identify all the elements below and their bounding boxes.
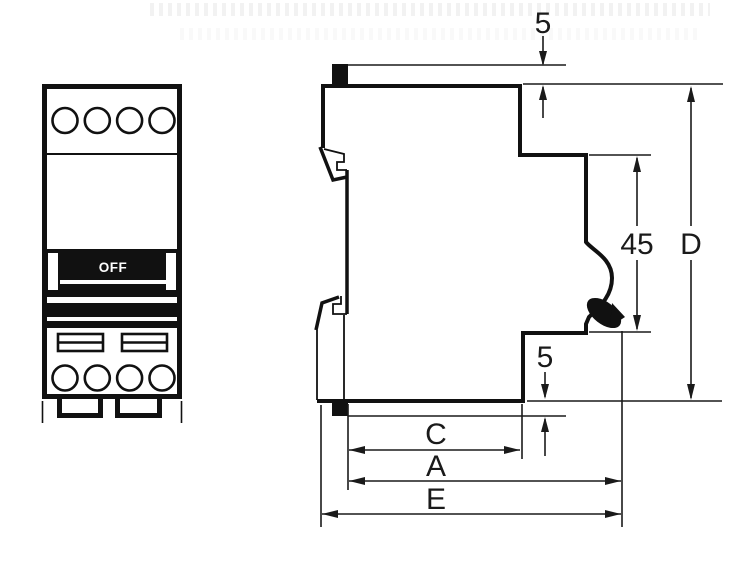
- dim-label-top-5: 5: [535, 7, 552, 40]
- terminal-screw: [150, 108, 175, 133]
- arrowhead: [349, 477, 365, 485]
- dim-45: 45: [620, 156, 653, 331]
- dim-label-45: 45: [620, 228, 653, 261]
- bottom-clamp-block: [332, 403, 348, 416]
- dim-label-C: C: [425, 418, 447, 451]
- arrowhead: [322, 510, 338, 518]
- side-view: [316, 64, 627, 416]
- arrowhead: [504, 446, 520, 454]
- arrowhead: [687, 384, 695, 400]
- dim-label-E: E: [426, 483, 446, 516]
- dim-E: E: [322, 483, 621, 518]
- arrowhead: [633, 315, 641, 331]
- technical-drawing: OFF: [0, 0, 745, 573]
- din-clip-bottom: [316, 296, 347, 400]
- arrowhead: [633, 156, 641, 172]
- arrowhead: [349, 446, 365, 454]
- terminal-screw: [53, 366, 78, 391]
- din-clip-top: [320, 147, 347, 180]
- dim-A: A: [349, 450, 621, 485]
- front-vents: [58, 334, 167, 351]
- arrowhead: [539, 51, 547, 66]
- terminal-screw: [117, 108, 142, 133]
- dim-label-bottom-5: 5: [537, 341, 554, 374]
- front-mounting-tabs: [43, 399, 182, 423]
- dim-D: D: [680, 86, 702, 400]
- arrowhead: [605, 477, 621, 485]
- terminal-screw: [85, 108, 110, 133]
- mounting-tab: [118, 399, 160, 416]
- arrowhead: [541, 384, 549, 399]
- dim-label-D: D: [680, 228, 702, 261]
- drawing-canvas: OFF: [0, 0, 745, 573]
- dim-top-5: 5: [535, 7, 552, 118]
- rib-band: [47, 321, 177, 328]
- front-bottom-terminals: [53, 366, 175, 391]
- switch-side-slot: [166, 253, 176, 290]
- rib-band: [47, 303, 177, 317]
- mounting-tab: [60, 399, 101, 416]
- terminal-screw: [150, 366, 175, 391]
- dim-C: C: [349, 418, 520, 454]
- terminal-screw: [117, 366, 142, 391]
- front-switch-block: OFF: [47, 249, 177, 297]
- side-body-outline: [317, 86, 612, 401]
- terminal-screw: [53, 108, 78, 133]
- arrowhead: [687, 86, 695, 102]
- dim-label-A: A: [426, 450, 446, 483]
- front-ribs: [47, 303, 177, 328]
- terminal-screw: [85, 366, 110, 391]
- arrowhead: [605, 510, 621, 518]
- front-top-terminals: [53, 108, 175, 133]
- switch-side-slot: [48, 253, 58, 290]
- switch-handle-gap: [60, 280, 166, 284]
- front-view: OFF: [43, 87, 182, 424]
- arrowhead: [539, 85, 547, 100]
- top-clamp-block: [332, 64, 348, 84]
- switch-state-label: OFF: [99, 260, 128, 275]
- arrowhead: [541, 417, 549, 432]
- dim-bottom-5: 5: [537, 341, 554, 456]
